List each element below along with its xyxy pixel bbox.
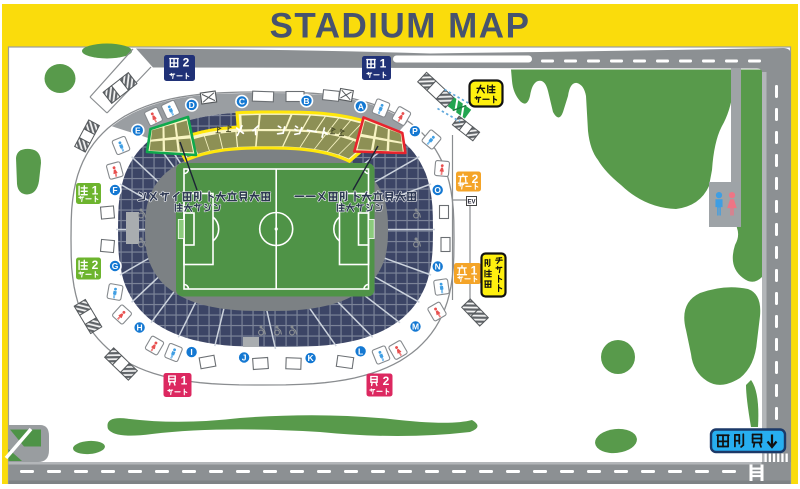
svg-text:A: A [358, 101, 364, 111]
svg-text:STADIUM MAP: STADIUM MAP [270, 7, 531, 46]
svg-text:K: K [308, 353, 315, 363]
svg-text:J: J [242, 353, 247, 363]
svg-text:F: F [112, 185, 117, 195]
svg-text:EV: EV [467, 200, 475, 206]
svg-text:1: 1 [181, 374, 188, 388]
svg-text:B: B [303, 96, 309, 106]
svg-text:1: 1 [471, 264, 478, 278]
svg-text:2: 2 [92, 258, 99, 272]
svg-text:1: 1 [92, 184, 99, 198]
svg-text:P: P [412, 126, 418, 136]
svg-text:C: C [239, 97, 245, 107]
svg-text:1: 1 [380, 57, 387, 71]
svg-text:E: E [135, 125, 141, 135]
svg-text:H: H [137, 323, 143, 333]
svg-text:2: 2 [183, 56, 190, 70]
svg-text:O: O [434, 185, 441, 195]
svg-text:D: D [189, 100, 195, 110]
svg-text:N: N [435, 262, 441, 272]
svg-text:G: G [112, 261, 119, 271]
svg-text:I: I [190, 347, 192, 357]
svg-text:M: M [412, 322, 419, 332]
svg-text:2: 2 [383, 374, 390, 388]
svg-text:L: L [358, 346, 363, 356]
